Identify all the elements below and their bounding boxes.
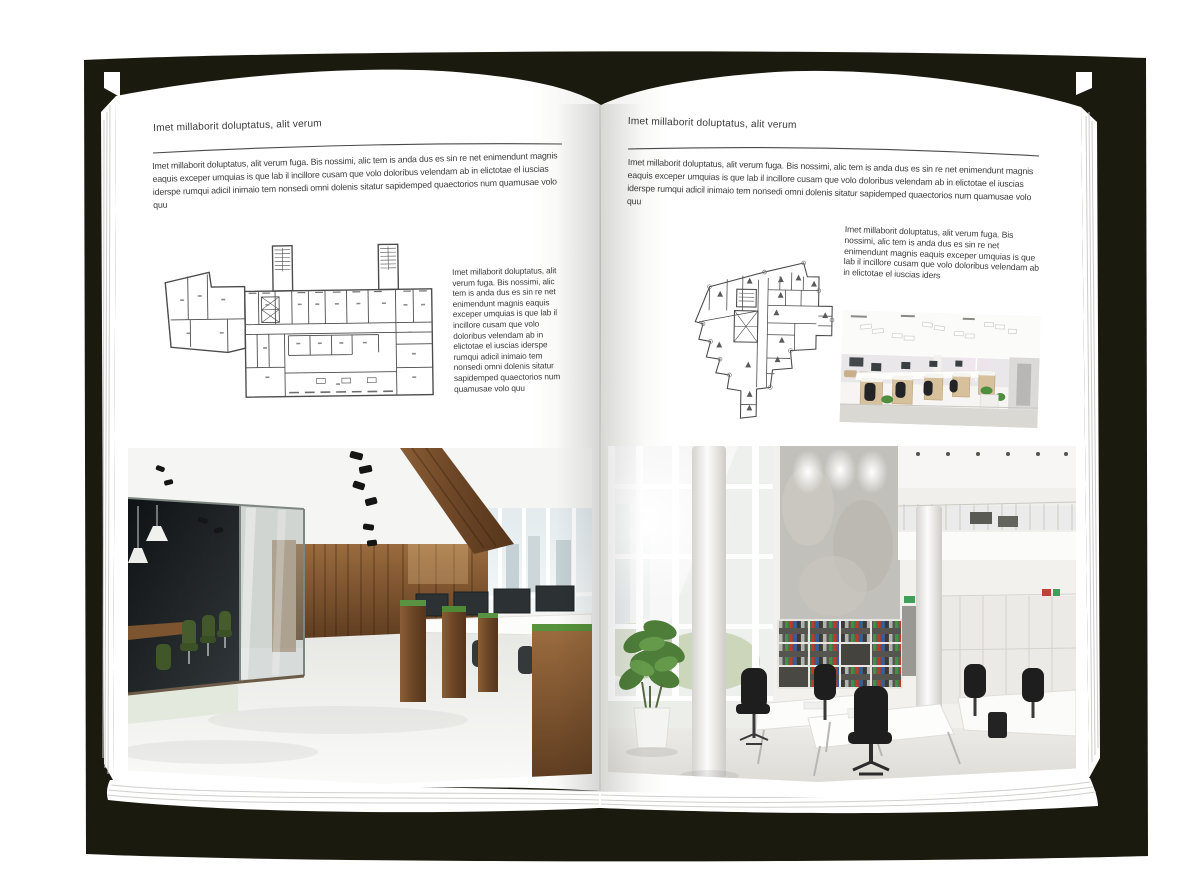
exit-sign xyxy=(904,596,915,603)
glass-meeting-room xyxy=(128,498,304,694)
column xyxy=(916,506,942,724)
ceiling xyxy=(842,310,1041,360)
right-side-text: Imet millaborit doluptatus, alit verum f… xyxy=(843,224,1043,285)
column xyxy=(692,446,726,778)
right-floor-plan xyxy=(646,219,846,427)
left-side-text: Imet millaborit doluptatus, alit verum f… xyxy=(452,265,566,394)
left-floor-plan xyxy=(147,228,450,418)
floor-plan-room-numbers xyxy=(180,293,426,386)
right-intro-paragraph: Imet millaborit doluptatus, alit verum f… xyxy=(627,156,1048,218)
magazine-mockup-stage: Imet millaborit doluptatus, alit verum I… xyxy=(0,0,1200,891)
left-intro-paragraph: Imet millaborit doluptatus, alit verum f… xyxy=(152,149,571,212)
bookshelf xyxy=(778,620,902,688)
door-marks xyxy=(715,273,829,412)
right-photo-atrium xyxy=(608,446,1076,782)
right-photo-cubicles xyxy=(839,310,1040,428)
left-photo-office-darkwood xyxy=(128,448,592,784)
concrete-wall xyxy=(780,446,900,620)
waste-bin xyxy=(988,712,1007,738)
floor-plan-walls xyxy=(165,244,433,398)
